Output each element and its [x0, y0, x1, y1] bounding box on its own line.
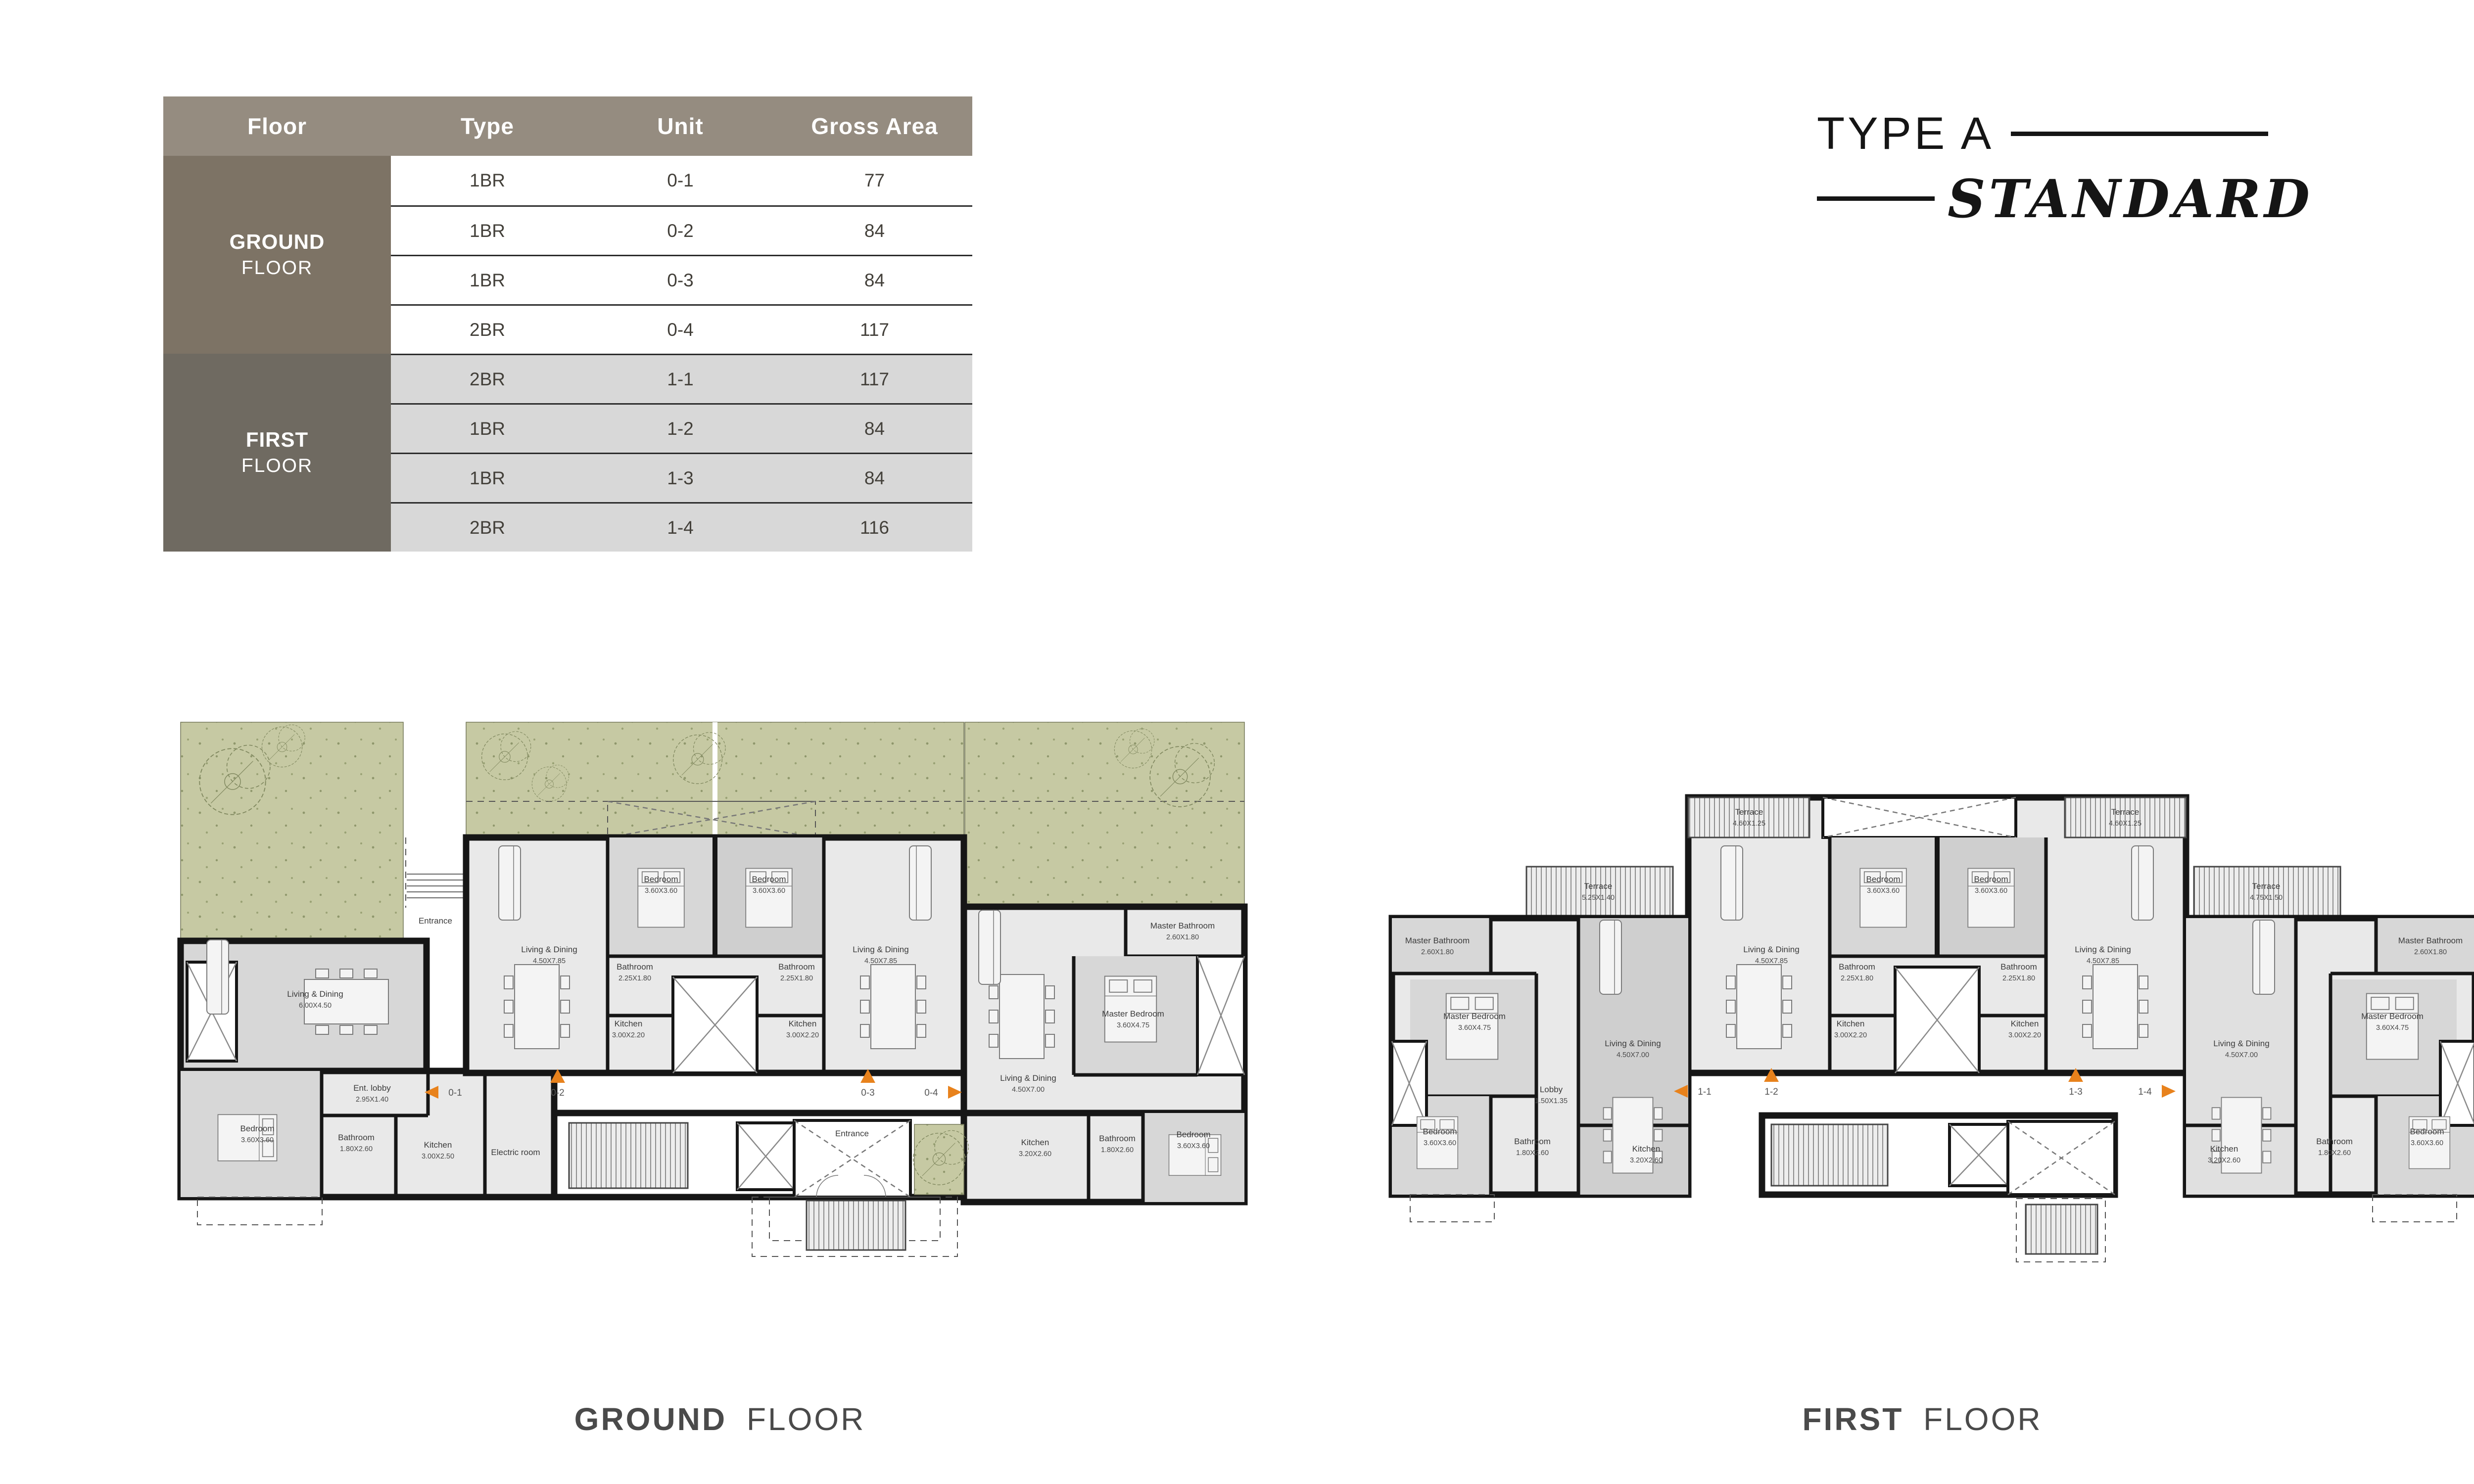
room-dims: 3.60X3.60: [2411, 1139, 2443, 1147]
room-dims: 3.60X3.60: [1424, 1139, 1456, 1147]
room-dims: 3.00X2.20: [2008, 1031, 2041, 1039]
room-label: Electric room: [491, 1148, 540, 1157]
floor-cell-ground: GROUND FLOOR: [163, 156, 391, 354]
caption-first-floor: FIRST FLOOR: [1675, 1401, 2170, 1438]
room-label: Living & Dining: [1743, 945, 1799, 954]
room-dims: 2.25X1.80: [780, 974, 813, 982]
unit-marker-label: 0-1: [448, 1088, 462, 1098]
ground-floor-plan: EntranceLiving & Dining6.00X4.50Ent. lob…: [158, 700, 1277, 1274]
room-dims: 1.50X1.35: [1535, 1097, 1568, 1105]
caption-ground-light: FLOOR: [747, 1401, 865, 1437]
floor-first-bold: FIRST: [246, 426, 308, 454]
room-label: Terrace: [2252, 881, 2281, 891]
exterior-stairs: [2026, 1205, 2097, 1254]
room-label: Bedroom: [644, 875, 678, 884]
table-header-row: Floor Type Unit Gross Area: [163, 96, 972, 156]
room-dims: 2.60X1.80: [2414, 948, 2447, 956]
room-label: Living & Dining: [521, 945, 577, 954]
room-label: Bathroom: [778, 962, 815, 972]
room-dims: 6.00X4.50: [299, 1002, 332, 1010]
garden-left: [181, 722, 403, 941]
room-label: Master Bedroom: [2361, 1012, 2424, 1021]
unit-marker-label: 1-2: [1764, 1087, 1778, 1097]
unit-marker-label: 1-1: [1698, 1087, 1711, 1097]
room-label: Kitchen: [2011, 1019, 2039, 1028]
room-dims: 2.95X1.40: [356, 1096, 388, 1104]
cell-type: 1BR: [391, 454, 584, 502]
room-label: Master Bathroom: [2398, 936, 2463, 945]
room-label: Kitchen: [615, 1019, 643, 1028]
terrace-1-1: [1526, 867, 1673, 918]
room-dims: 3.00X2.20: [1834, 1031, 1867, 1039]
room-dims: 3.00X2.20: [786, 1031, 819, 1039]
room-dims: 1.80X2.60: [1516, 1149, 1549, 1157]
cell-type: 1BR: [391, 405, 584, 453]
table-row: 1BR 1-2 84: [391, 403, 972, 453]
table-row: 1BR 0-1 77: [391, 156, 972, 205]
room-dims: 4.60X1.25: [1733, 820, 1765, 828]
cell-type: 1BR: [391, 207, 584, 255]
cell-area: 84: [777, 405, 972, 453]
room-label: Living & Dining: [853, 945, 908, 954]
unit-marker-arrow-icon: [2162, 1085, 2176, 1098]
room-label: Kitchen: [1021, 1138, 1049, 1147]
room-label: Bathroom: [2316, 1137, 2353, 1146]
cell-type: 2BR: [391, 355, 584, 403]
title-rule-right: [2011, 132, 2268, 136]
cell-area: 117: [777, 306, 972, 354]
room-dims: 3.60X4.75: [2376, 1024, 2409, 1032]
table-row: 1BR 0-2 84: [391, 205, 972, 255]
room-label: Kitchen: [424, 1140, 452, 1150]
exterior-stairs: [807, 1201, 905, 1250]
floor-ground-bold: GROUND: [230, 229, 325, 256]
unit-marker-label: 0-2: [551, 1088, 564, 1098]
room-dims: 3.60X3.60: [645, 887, 677, 895]
room-label: Bedroom: [1177, 1130, 1211, 1139]
cell-unit: 0-1: [584, 156, 777, 205]
room-dims: 3.20X2.60: [1630, 1157, 1663, 1164]
room-label: Bedroom: [1866, 875, 1901, 884]
room-label: Master Bedroom: [1443, 1012, 1506, 1021]
cell-unit: 1-4: [584, 504, 777, 552]
room-label: Bedroom: [2410, 1127, 2444, 1136]
stairs: [1771, 1124, 1888, 1186]
room-label: Kitchen: [1837, 1019, 1865, 1028]
title-rule-left: [1817, 196, 1935, 201]
cell-area: 117: [777, 355, 972, 403]
room-label: Bedroom: [240, 1124, 275, 1133]
room-dims: 4.60X1.25: [2109, 820, 2141, 828]
room-dims: 3.60X4.75: [1458, 1024, 1491, 1032]
plan-type-title: TYPE A STANDARD: [1817, 108, 2313, 230]
table-row: 1BR 1-3 84: [391, 453, 972, 502]
cell-unit: 1-3: [584, 454, 777, 502]
room-label: Bathroom: [2000, 962, 2037, 972]
room-label: Bathroom: [1839, 962, 1875, 972]
room-label: Living & Dining: [1000, 1073, 1056, 1083]
room-label: Kitchen: [2210, 1144, 2238, 1154]
header-type: Type: [391, 96, 584, 156]
room-label: Master Bedroom: [1102, 1009, 1164, 1019]
type-a-text: TYPE A: [1817, 108, 1994, 160]
room-dims: 4.50X7.85: [864, 957, 897, 965]
table-rows: 1BR 0-1 77 1BR 0-2 84 1BR 0-3 84 2BR 0-4: [391, 156, 972, 552]
unit-marker-label: 1-3: [2069, 1087, 2082, 1097]
brochure-page: Floor Type Unit Gross Area GROUND FLOOR …: [0, 0, 2474, 1484]
header-unit: Unit: [584, 96, 777, 156]
cell-type: 1BR: [391, 256, 584, 304]
room-dims: 3.60X4.75: [1117, 1021, 1149, 1029]
room-dims: 2.25X1.80: [2002, 974, 2035, 982]
room-dims: 2.25X1.80: [1841, 974, 1873, 982]
room-label: Bedroom: [1423, 1127, 1457, 1136]
room-dims: 4.50X7.85: [533, 957, 566, 965]
room-label: Terrace: [2111, 807, 2140, 817]
room-label: Living & Dining: [287, 989, 343, 999]
room-dims: 4.50X7.00: [1012, 1086, 1045, 1094]
table-row: 2BR 1-4 116: [391, 502, 972, 552]
room-dims: 3.60X3.60: [753, 887, 785, 895]
room-dims: 3.60X3.60: [241, 1136, 274, 1144]
room-label: Terrace: [1584, 881, 1613, 891]
room-dims: 4.75X1.50: [2250, 894, 2283, 902]
room-dims: 4.50X7.00: [2225, 1051, 2258, 1059]
unit-marker-label: 0-4: [924, 1088, 938, 1098]
room-dims: 1.80X2.60: [340, 1145, 373, 1153]
room-dims: 5.25X1.40: [1582, 894, 1615, 902]
terrace-top-left: [1688, 797, 1809, 837]
terrace-1-4: [2194, 867, 2340, 918]
room-label: Bedroom: [1974, 875, 2008, 884]
room-label: Living & Dining: [2075, 945, 2131, 954]
floor-column: GROUND FLOOR FIRST FLOOR: [163, 156, 391, 552]
room-label: Kitchen: [789, 1019, 817, 1028]
room-label: Bathroom: [1099, 1134, 1136, 1143]
cell-type: 2BR: [391, 306, 584, 354]
floor-ground-light: FLOOR: [241, 256, 313, 281]
cell-unit: 0-3: [584, 256, 777, 304]
standard-text: STANDARD: [1948, 168, 2313, 230]
cell-unit: 0-4: [584, 306, 777, 354]
room-dims: 4.50X7.85: [2087, 957, 2119, 965]
garden-patch-entrance: [914, 1124, 964, 1195]
unit-marker-arrow-icon: [948, 1086, 962, 1099]
room-label: Terrace: [1735, 807, 1763, 817]
room-label: Bathroom: [617, 962, 653, 972]
first-floor-plan: Terrace5.25X1.40Master Bathroom2.60X1.80…: [1380, 700, 2474, 1274]
header-gross-area: Gross Area: [777, 96, 972, 156]
cell-area: 84: [777, 256, 972, 304]
room-label: Ent. lobby: [353, 1083, 391, 1093]
room-dims: 3.20X2.60: [1019, 1150, 1051, 1158]
cell-area: 116: [777, 504, 972, 552]
room-label: Bathroom: [338, 1133, 375, 1142]
room-dims: 1.80X2.60: [2318, 1149, 2351, 1157]
room-dims: 3.00X2.50: [422, 1153, 454, 1160]
cell-area: 77: [777, 156, 972, 205]
cell-unit: 1-2: [584, 405, 777, 453]
stairs: [569, 1123, 688, 1188]
room-dims: 4.50X7.00: [1617, 1051, 1649, 1059]
room-label: Master Bathroom: [1405, 936, 1470, 945]
unit-summary-table: Floor Type Unit Gross Area GROUND FLOOR …: [163, 96, 972, 552]
room-dims: 3.60X3.60: [1177, 1142, 1210, 1150]
unit-marker-label: 1-4: [2138, 1087, 2152, 1097]
room-dims: 2.60X1.80: [1166, 933, 1199, 941]
cell-unit: 0-2: [584, 207, 777, 255]
floor-first-light: FLOOR: [241, 454, 313, 479]
room-dims: 3.20X2.60: [2208, 1157, 2240, 1164]
terrace-top-right: [2065, 797, 2186, 837]
room-label: Bathroom: [1514, 1137, 1551, 1146]
caption-first-bold: FIRST: [1802, 1401, 1903, 1437]
floor-cell-first: FIRST FLOOR: [163, 354, 391, 552]
cell-area: 84: [777, 207, 972, 255]
unit-marker-label: 0-3: [861, 1088, 874, 1098]
table-row: 2BR 1-1 117: [391, 354, 972, 403]
room-dims: 4.50X7.85: [1755, 957, 1788, 965]
room-label: Entrance: [835, 1129, 869, 1138]
room-label: Bedroom: [752, 875, 786, 884]
garden-right: [965, 722, 1244, 907]
header-floor: Floor: [163, 96, 391, 156]
caption-ground-floor: GROUND FLOOR: [473, 1401, 967, 1438]
cell-type: 1BR: [391, 156, 584, 205]
room-dims: 3.60X3.60: [1975, 887, 2007, 895]
table-row: 1BR 0-3 84: [391, 255, 972, 304]
cell-unit: 1-1: [584, 355, 777, 403]
room-label: Lobby: [1540, 1085, 1563, 1094]
room-label: Living & Dining: [1605, 1039, 1661, 1048]
caption-ground-bold: GROUND: [574, 1401, 727, 1437]
table-row: 2BR 0-4 117: [391, 304, 972, 354]
room-label: Living & Dining: [2213, 1039, 2269, 1048]
cell-type: 2BR: [391, 504, 584, 552]
cell-area: 84: [777, 454, 972, 502]
room-dims: 2.25X1.80: [618, 974, 651, 982]
room-dims: 3.00X2.20: [612, 1031, 645, 1039]
room-dims: 1.80X2.60: [1101, 1146, 1134, 1154]
room-label: Entrance: [419, 916, 452, 926]
room-label: Kitchen: [1632, 1144, 1661, 1154]
caption-first-light: FLOOR: [1923, 1401, 2042, 1437]
room-dims: 3.60X3.60: [1867, 887, 1900, 895]
room-dims: 2.60X1.80: [1421, 948, 1454, 956]
room-label: Master Bathroom: [1150, 921, 1215, 930]
